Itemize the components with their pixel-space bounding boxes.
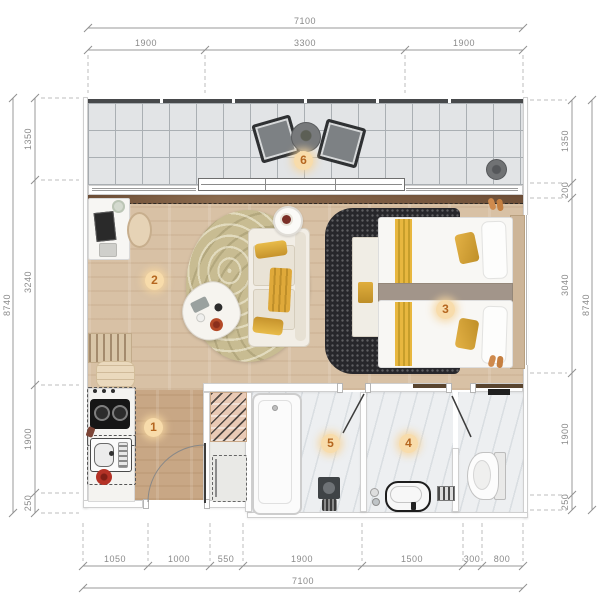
bed-1-pillow-gold [454,231,480,265]
curtain-strip [88,195,523,204]
doorframe-bathroom-right [470,383,476,393]
hatched-cabinet [210,392,247,442]
room-badge-shower: 5 [321,434,340,453]
toilet-threshold-dark [488,389,510,395]
dim-bottom-seg-5: 1500 [392,553,432,565]
side-table-plant [282,215,291,224]
dim-right-seg-1: 1350 [559,121,571,161]
dim-right-seg-4: 1900 [559,414,571,454]
coffee-table-mug-red [209,317,224,332]
wardrobe-strip-dark-2 [472,384,523,388]
slippers-top [489,198,506,212]
coffee-table-plate-dark [214,303,223,312]
balcony-railing [88,99,523,103]
room-badge-living: 2 [145,271,164,290]
coffee-table-cup [195,312,206,323]
bed-1 [378,217,513,285]
dim-bottom-seg-7: 800 [482,553,522,565]
dim-left-total: 8740 [1,285,13,325]
bathtub [252,393,302,515]
wardrobe-strip-dark [413,384,448,388]
slipper [496,356,503,369]
dim-bottom-seg-2: 1000 [159,553,199,565]
desk-accessory [99,243,117,257]
dim-top-seg-3: 1900 [444,37,484,49]
dim-bottom-seg-4: 1900 [282,553,322,565]
slipper [496,199,504,212]
shower-fixture [322,499,337,511]
floor-drain-circle [323,482,335,494]
washer-left-line [215,459,217,497]
desk-monitor [94,211,117,242]
soap-dish [370,488,379,497]
dim-top-seg-1: 1900 [126,37,166,49]
sofa-back [295,232,306,341]
dim-top-seg-2: 3300 [285,37,325,49]
toilet-seat [473,460,491,490]
sofa-throw-gold [268,267,292,312]
room-badge-bedroom: 3 [436,300,455,319]
doorframe-entry-left [143,499,149,509]
wall-toilet-partition [452,448,459,512]
doorframe-shower-left [337,383,343,393]
bed-2-pillow-gold [455,317,480,350]
floor-plan-canvas: 1 2 3 4 5 6 7100 1900 3300 1900 1050 100… [0,0,610,616]
slat-bench [88,333,132,363]
doorframe-shower-right [365,383,371,393]
pouf [96,361,135,388]
dim-bottom-total: 7100 [283,575,323,587]
washer-space-dashed [212,455,247,502]
towel-rail [437,486,455,501]
dim-left-seg-1: 1350 [22,119,34,159]
sliding-door [198,178,405,191]
room-badge-bathroom: 4 [399,434,418,453]
window-glazing-right [406,188,518,191]
desk-chair [127,212,152,248]
window-glazing-left [92,188,196,191]
bathtub-drain [272,405,278,411]
sofa-pillow-gold-bottom [252,316,284,336]
wall-shower-bathroom [360,392,367,512]
balcony-table [291,122,321,152]
slippers-bottom [489,355,506,369]
dim-top-total: 7100 [285,15,325,27]
desk-plant [112,200,125,213]
vanity-faucet [411,502,416,510]
toiletry-jar [372,498,380,506]
doorframe-bathroom-left [446,383,452,393]
balcony-plant-pot [486,159,507,180]
sliding-door-divider-2 [335,179,336,190]
bedroom-console [352,237,380,337]
slipper [487,354,496,367]
sliding-door-rail [201,184,402,185]
sofa [248,228,310,347]
dim-right-total: 8740 [580,285,592,325]
doorframe-entry-right [204,499,210,509]
wall-kitchen-utility [203,392,210,500]
red-flowers [96,469,112,485]
room-badge-kitchen: 1 [144,418,163,437]
sliding-door-divider-1 [265,179,266,190]
dim-bottom-seg-1: 1050 [95,553,135,565]
coffee-table-tray [190,296,210,313]
dim-right-seg-3: 3040 [559,265,571,305]
room-badge-balcony: 6 [294,151,313,170]
floor-drain [318,477,340,499]
toilet-bowl [467,452,499,500]
dim-left-seg-2: 3240 [22,262,34,302]
bed-1-runner-gold [395,219,412,283]
vanity-basin [385,481,431,512]
wall-mid-left [203,383,341,392]
side-table [273,206,303,236]
dim-right-seg-2: 200 [559,170,571,210]
console-gold-decor [358,282,373,303]
dim-left-seg-4: 250 [22,483,34,523]
bed-1-pillow [481,221,508,280]
bathtub-inner [258,400,292,504]
vanity-basin-inner [390,486,422,503]
slipper [487,197,496,210]
dim-left-seg-3: 1900 [22,419,34,459]
dim-right-seg-5: 250 [559,482,571,522]
bed-2-runner-gold [395,302,412,366]
dim-bottom-seg-3: 550 [206,553,246,565]
